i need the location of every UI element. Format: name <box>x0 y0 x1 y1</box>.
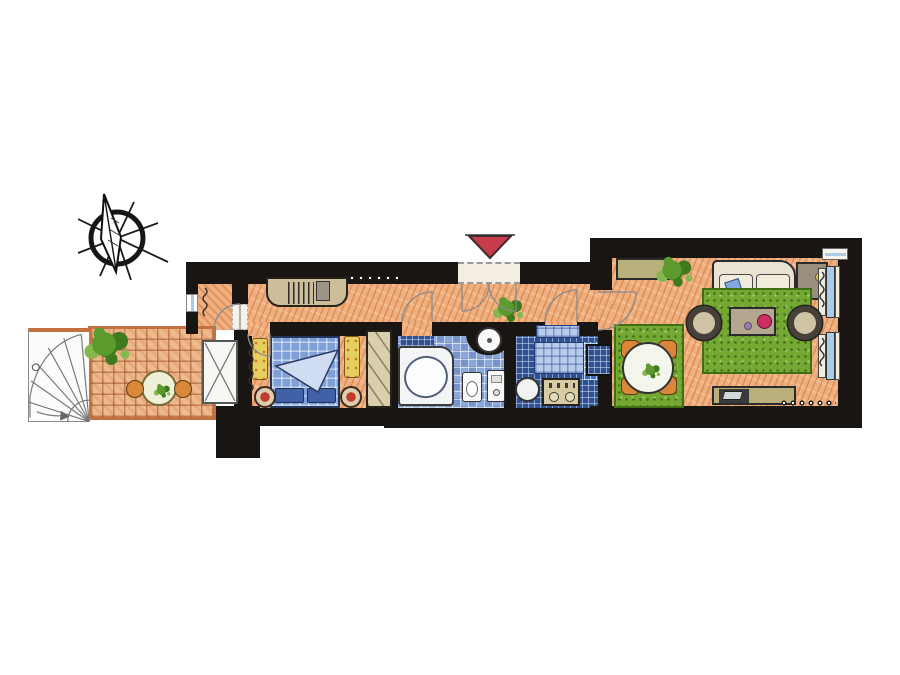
wall-top-left-b <box>520 262 598 284</box>
french-door-fold-lines <box>204 342 236 402</box>
wall-left-outer-b <box>186 312 198 334</box>
window-top-right-glass <box>825 253 846 256</box>
toilet-bowl <box>466 381 478 397</box>
wall-bathroom-top-a <box>392 322 402 336</box>
kitchen-round-table <box>515 377 540 402</box>
wall-right <box>838 238 862 428</box>
bathtub-basin <box>399 350 454 404</box>
boiler <box>487 370 505 402</box>
wall-bottom-right <box>590 406 862 428</box>
wall-balcony-right-a <box>232 262 248 304</box>
small-purple-dish <box>744 322 752 330</box>
window-right-upper-radiator <box>818 268 826 316</box>
spiral-staircase <box>28 328 90 422</box>
bedroom-stool-right <box>340 386 362 408</box>
bedroom-door-opening <box>248 322 270 336</box>
entrance-door-opening <box>458 262 520 284</box>
wall-bottom-middle <box>384 408 604 428</box>
floor-plan-canvas <box>0 0 900 675</box>
spiral-stair-steps <box>29 332 89 422</box>
wall-step-connector <box>590 238 612 290</box>
tv-set <box>719 389 749 403</box>
washbasin <box>476 327 502 353</box>
window-right-lower-glass <box>826 332 835 380</box>
window-right-upper-sill <box>835 266 840 318</box>
toilet <box>462 372 482 402</box>
round-armchair-left <box>687 306 721 340</box>
kitchen-pass-through-window <box>586 344 612 376</box>
radiator-dots-bottom <box>780 398 836 408</box>
terrace-plant <box>92 332 116 356</box>
hallway-plant <box>498 300 514 316</box>
boiler-dial <box>493 389 500 396</box>
living-room-door-opening <box>598 290 612 330</box>
balcony-window <box>186 294 198 312</box>
window-right-upper-glass <box>826 266 835 318</box>
window-right-lower-sill <box>835 332 840 380</box>
round-armchair-right <box>788 306 822 340</box>
bedside-rug-right <box>344 336 360 378</box>
window-right-lower-radiator <box>818 334 826 378</box>
built-in-closet <box>266 277 348 307</box>
balcony-window-glass <box>191 295 194 311</box>
entrance-marker-triangle <box>469 236 511 258</box>
corner-bathtub <box>398 346 454 406</box>
compass-rose-icon <box>78 188 170 294</box>
terrace-chair-right <box>174 380 192 398</box>
bathroom-door-opening <box>402 322 432 336</box>
window-top-right <box>822 248 848 260</box>
mirrored-wardrobe <box>366 330 392 408</box>
closet-hanger-rail <box>288 282 314 304</box>
double-bed <box>270 336 340 408</box>
coffee-table <box>729 307 776 336</box>
terrace-table <box>141 370 177 406</box>
wall-kitchen-top-b <box>577 322 600 336</box>
balcony-floor <box>198 284 232 330</box>
living-room-plant <box>662 260 681 279</box>
terrace-chair-left <box>126 380 144 398</box>
bed-pillow-left <box>275 388 304 403</box>
wall-left-outer-a <box>186 262 198 294</box>
dining-table <box>622 342 674 394</box>
red-bowl <box>757 314 772 329</box>
bedside-rug-left <box>252 338 268 380</box>
terrace-french-door <box>202 340 238 404</box>
bedroom-stool-left <box>254 386 276 408</box>
washbasin-drain <box>487 338 492 343</box>
balcony-door-opening <box>232 304 248 330</box>
wall-block-terrace-south <box>216 406 260 458</box>
stove-burner-left <box>549 392 559 402</box>
stove-knobs <box>549 383 575 388</box>
dining-table-centerpiece <box>645 365 655 375</box>
terrace-table-centerpiece <box>157 386 166 395</box>
stove <box>542 378 580 406</box>
coat-hooks <box>348 273 398 284</box>
kitchen-counter-top <box>536 325 580 338</box>
tv-screen <box>722 391 743 400</box>
closet-shelf <box>316 281 330 301</box>
bed-pillow-right <box>307 388 336 403</box>
boiler-panel <box>491 375 502 383</box>
kitchen-table-checker <box>534 342 584 374</box>
stove-burner-right <box>565 392 575 402</box>
